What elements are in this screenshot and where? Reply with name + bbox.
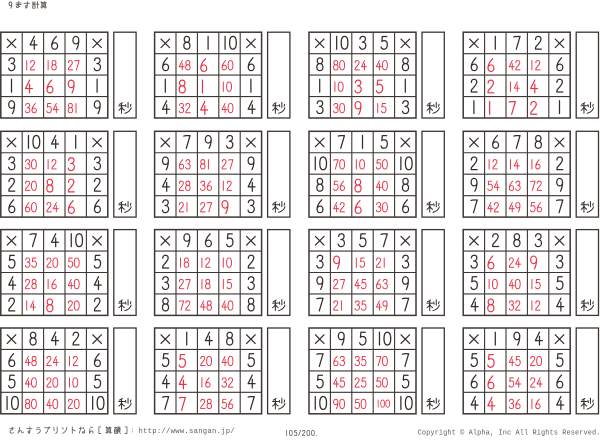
svg-text:Copyright © Alpha, Inc All Rig: Copyright © Alpha, Inc All Rights Reserv… bbox=[418, 429, 600, 438]
svg-text:http://www.sangan.jp/: http://www.sangan.jp/ bbox=[139, 428, 235, 436]
